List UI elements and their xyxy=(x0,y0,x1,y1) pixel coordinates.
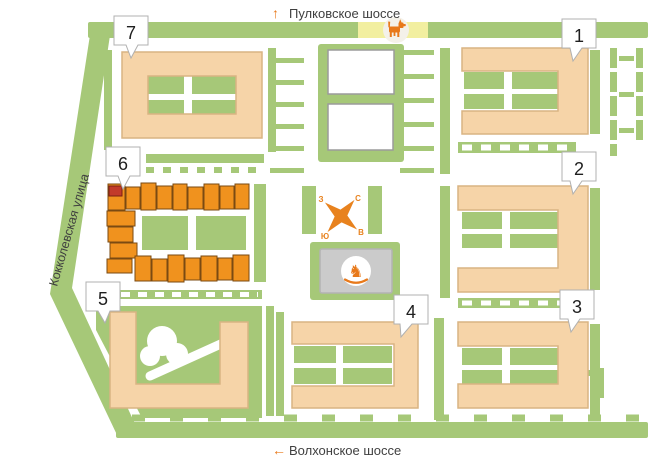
masterplan-map: ♞ С З В Ю xyxy=(0,0,652,461)
building-label-3-number: 3 xyxy=(572,297,582,317)
building-label-6[interactable]: 6 xyxy=(106,147,140,189)
playground: ♞ xyxy=(320,249,392,293)
building-label-4-number: 4 xyxy=(406,302,416,322)
north-arrow-icon: ↑ xyxy=(272,5,279,21)
west-arrow-icon: ← xyxy=(272,442,286,458)
building-label-2-number: 2 xyxy=(574,159,584,179)
compass-north: С xyxy=(355,194,361,203)
building-label-6-number: 6 xyxy=(118,154,128,174)
compass-east: В xyxy=(358,228,364,237)
compass-south: Ю xyxy=(321,232,329,241)
compass-rose: С З В Ю xyxy=(311,186,370,245)
rocking-horse-icon: ♞ xyxy=(348,262,363,282)
compass-west: З xyxy=(318,195,323,204)
street-south-label: Волхонское шоссе xyxy=(289,443,401,458)
building-label-1-number: 1 xyxy=(574,26,584,46)
building-label-7-number: 7 xyxy=(126,23,136,43)
unnumbered-building-top xyxy=(328,50,394,94)
street-north-label: Пулковское шоссе xyxy=(289,6,400,21)
unnumbered-building-bottom xyxy=(328,104,393,150)
building-6-sold-section xyxy=(109,186,122,196)
building-label-5-number: 5 xyxy=(98,289,108,309)
